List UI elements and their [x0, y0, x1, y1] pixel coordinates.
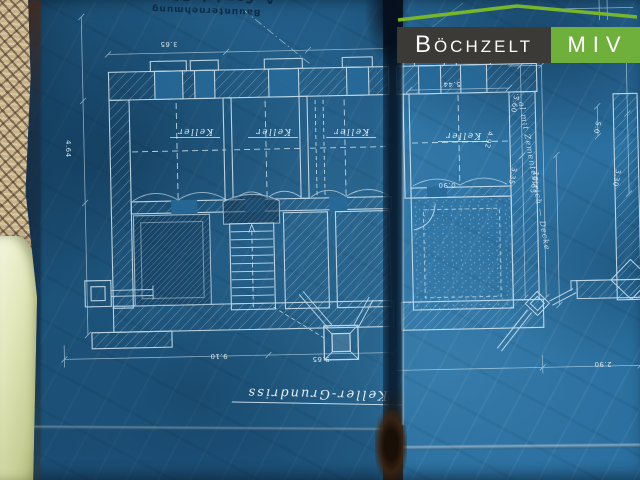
room-label: Keller: [248, 126, 298, 138]
roof-outline-icon: [388, 0, 640, 26]
dimension-label: 9.10: [210, 352, 228, 360]
tear-highlight-edge: [402, 55, 404, 425]
room-label: Keller: [326, 126, 376, 138]
dimension-label: 4.64: [64, 140, 72, 158]
dimension-label: 3.65: [160, 40, 178, 48]
dimension-label: 2.90: [594, 360, 612, 368]
watermark-unit: MIV: [551, 27, 640, 63]
room-label: Keller: [438, 130, 488, 142]
photo-of-blueprint: Bauunternehmung A. Sandel, Bützau Keller…: [0, 0, 640, 480]
fold-shadow: [28, 430, 388, 480]
paper-tear: [383, 0, 403, 480]
dimension-label: 5.44: [443, 80, 461, 88]
dimension-label: 9.65: [312, 355, 330, 363]
plan-interior-walls: [129, 92, 511, 215]
room-label: Keller: [170, 126, 220, 138]
plan-title: Keller-Grundriss: [232, 385, 402, 406]
watermark-company: Böchzelt: [397, 27, 551, 63]
dimension-label: 0.90: [438, 181, 456, 189]
blueprint-paper: Bauunternehmung A. Sandel, Bützau Keller…: [0, 0, 640, 480]
